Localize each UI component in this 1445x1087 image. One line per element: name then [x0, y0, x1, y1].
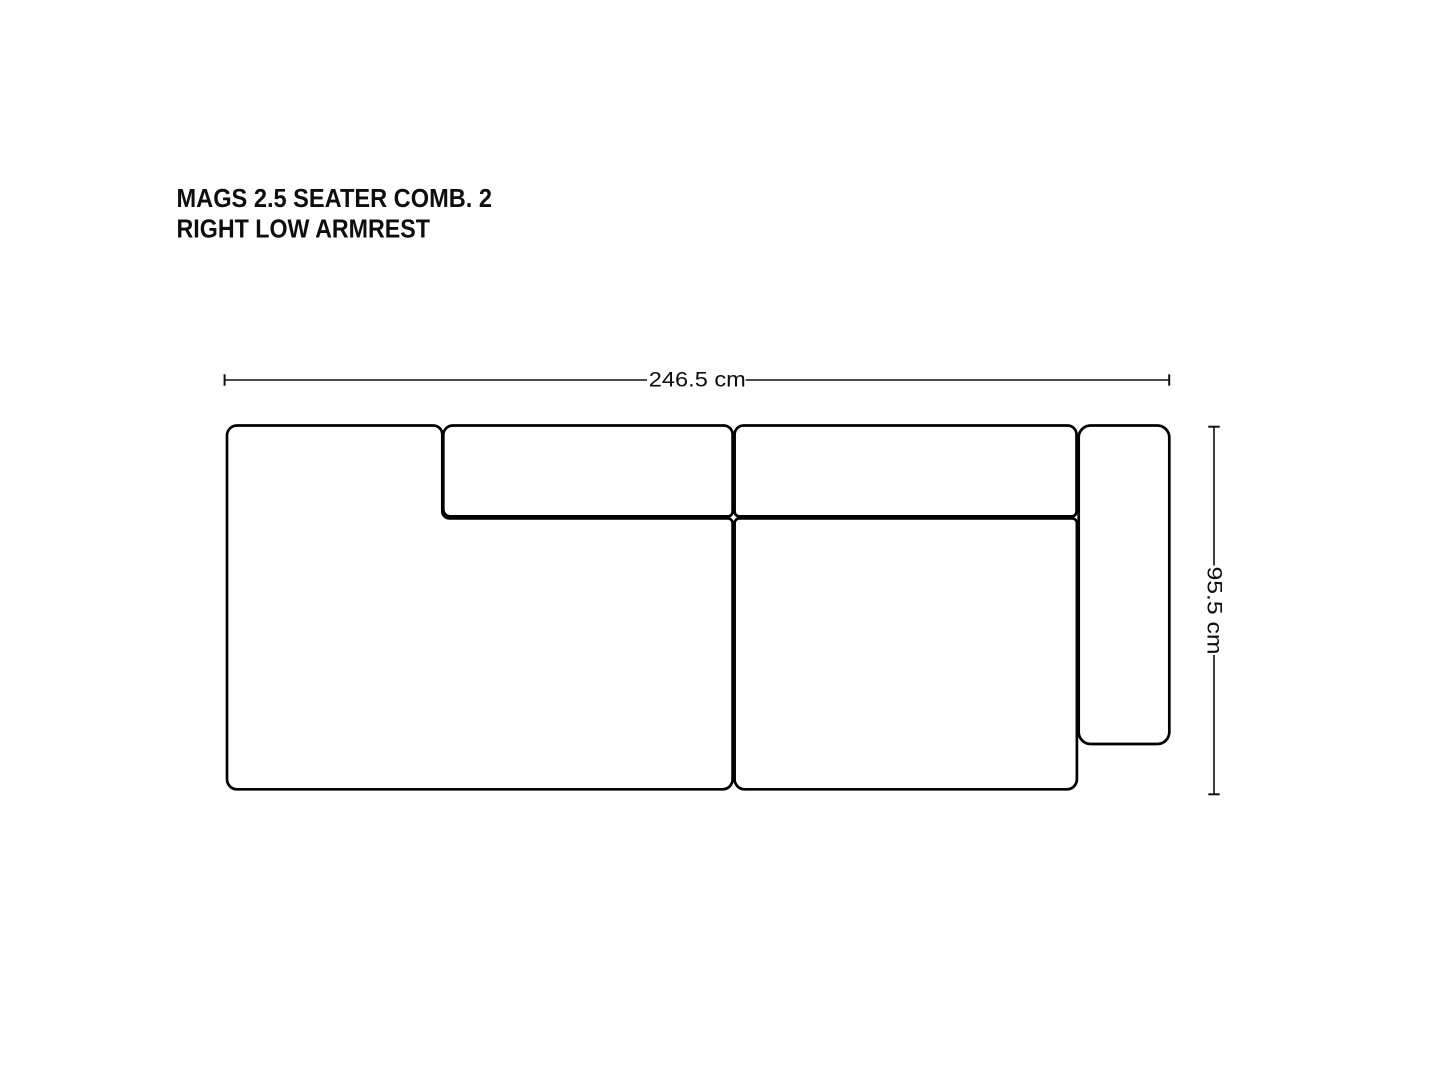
svg-text:95.5 cm: 95.5 cm — [1202, 567, 1225, 655]
svg-text:246.5 cm: 246.5 cm — [649, 368, 746, 391]
svg-text:RIGHT LOW ARMREST: RIGHT LOW ARMREST — [177, 216, 431, 244]
svg-text:MAGS 2.5 SEATER COMB. 2: MAGS 2.5 SEATER COMB. 2 — [177, 185, 493, 213]
